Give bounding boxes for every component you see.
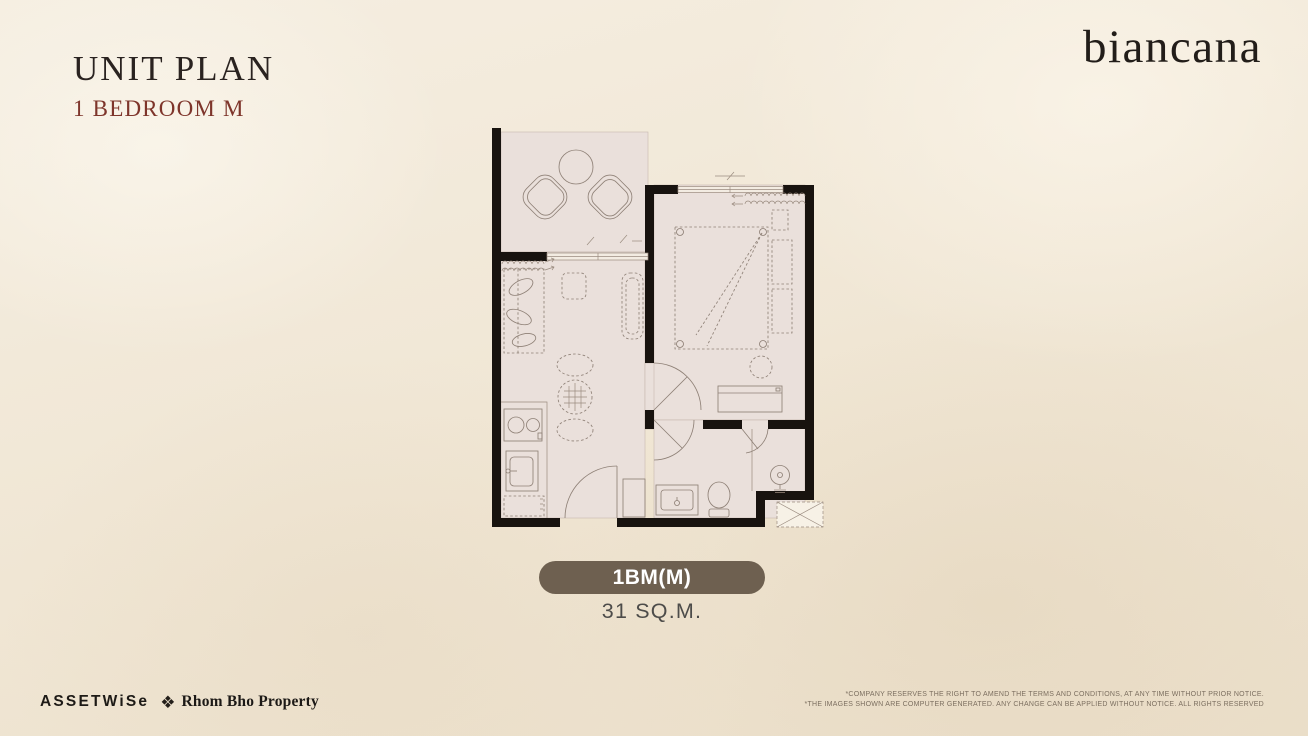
ac-unit xyxy=(777,502,823,527)
disclaimer-text: *COMPANY RESERVES THE RIGHT TO AMEND THE… xyxy=(804,690,1264,710)
floor-plan xyxy=(490,123,830,535)
living-floor xyxy=(501,252,645,518)
brand-logo: biancana xyxy=(1083,20,1262,74)
footer-logos: ASSETWiSe ❖ Rhom Bho Property xyxy=(40,690,319,714)
diamond-cluster-icon: ❖ xyxy=(160,694,175,711)
floor-plan-svg xyxy=(490,123,830,535)
partner-logo: ❖ Rhom Bho Property xyxy=(160,693,319,711)
title-block: UNIT PLAN 1 BEDROOM M xyxy=(73,50,274,122)
disclaimer-line-2: *THE IMAGES SHOWN ARE COMPUTER GENERATED… xyxy=(804,700,1264,710)
unit-type-badge: 1BM(M) xyxy=(539,561,765,594)
bedroom-window xyxy=(678,172,783,193)
page-subtitle: 1 BEDROOM M xyxy=(73,96,274,122)
page-title: UNIT PLAN xyxy=(73,50,274,89)
disclaimer-line-1: *COMPANY RESERVES THE RIGHT TO AMEND THE… xyxy=(804,690,1264,700)
unit-area-label: 31 SQ.M. xyxy=(489,599,815,624)
bedroom-floor xyxy=(654,185,805,420)
partner-logo-text: Rhom Bho Property xyxy=(182,693,319,711)
assetwise-logo: ASSETWiSe xyxy=(40,693,149,711)
